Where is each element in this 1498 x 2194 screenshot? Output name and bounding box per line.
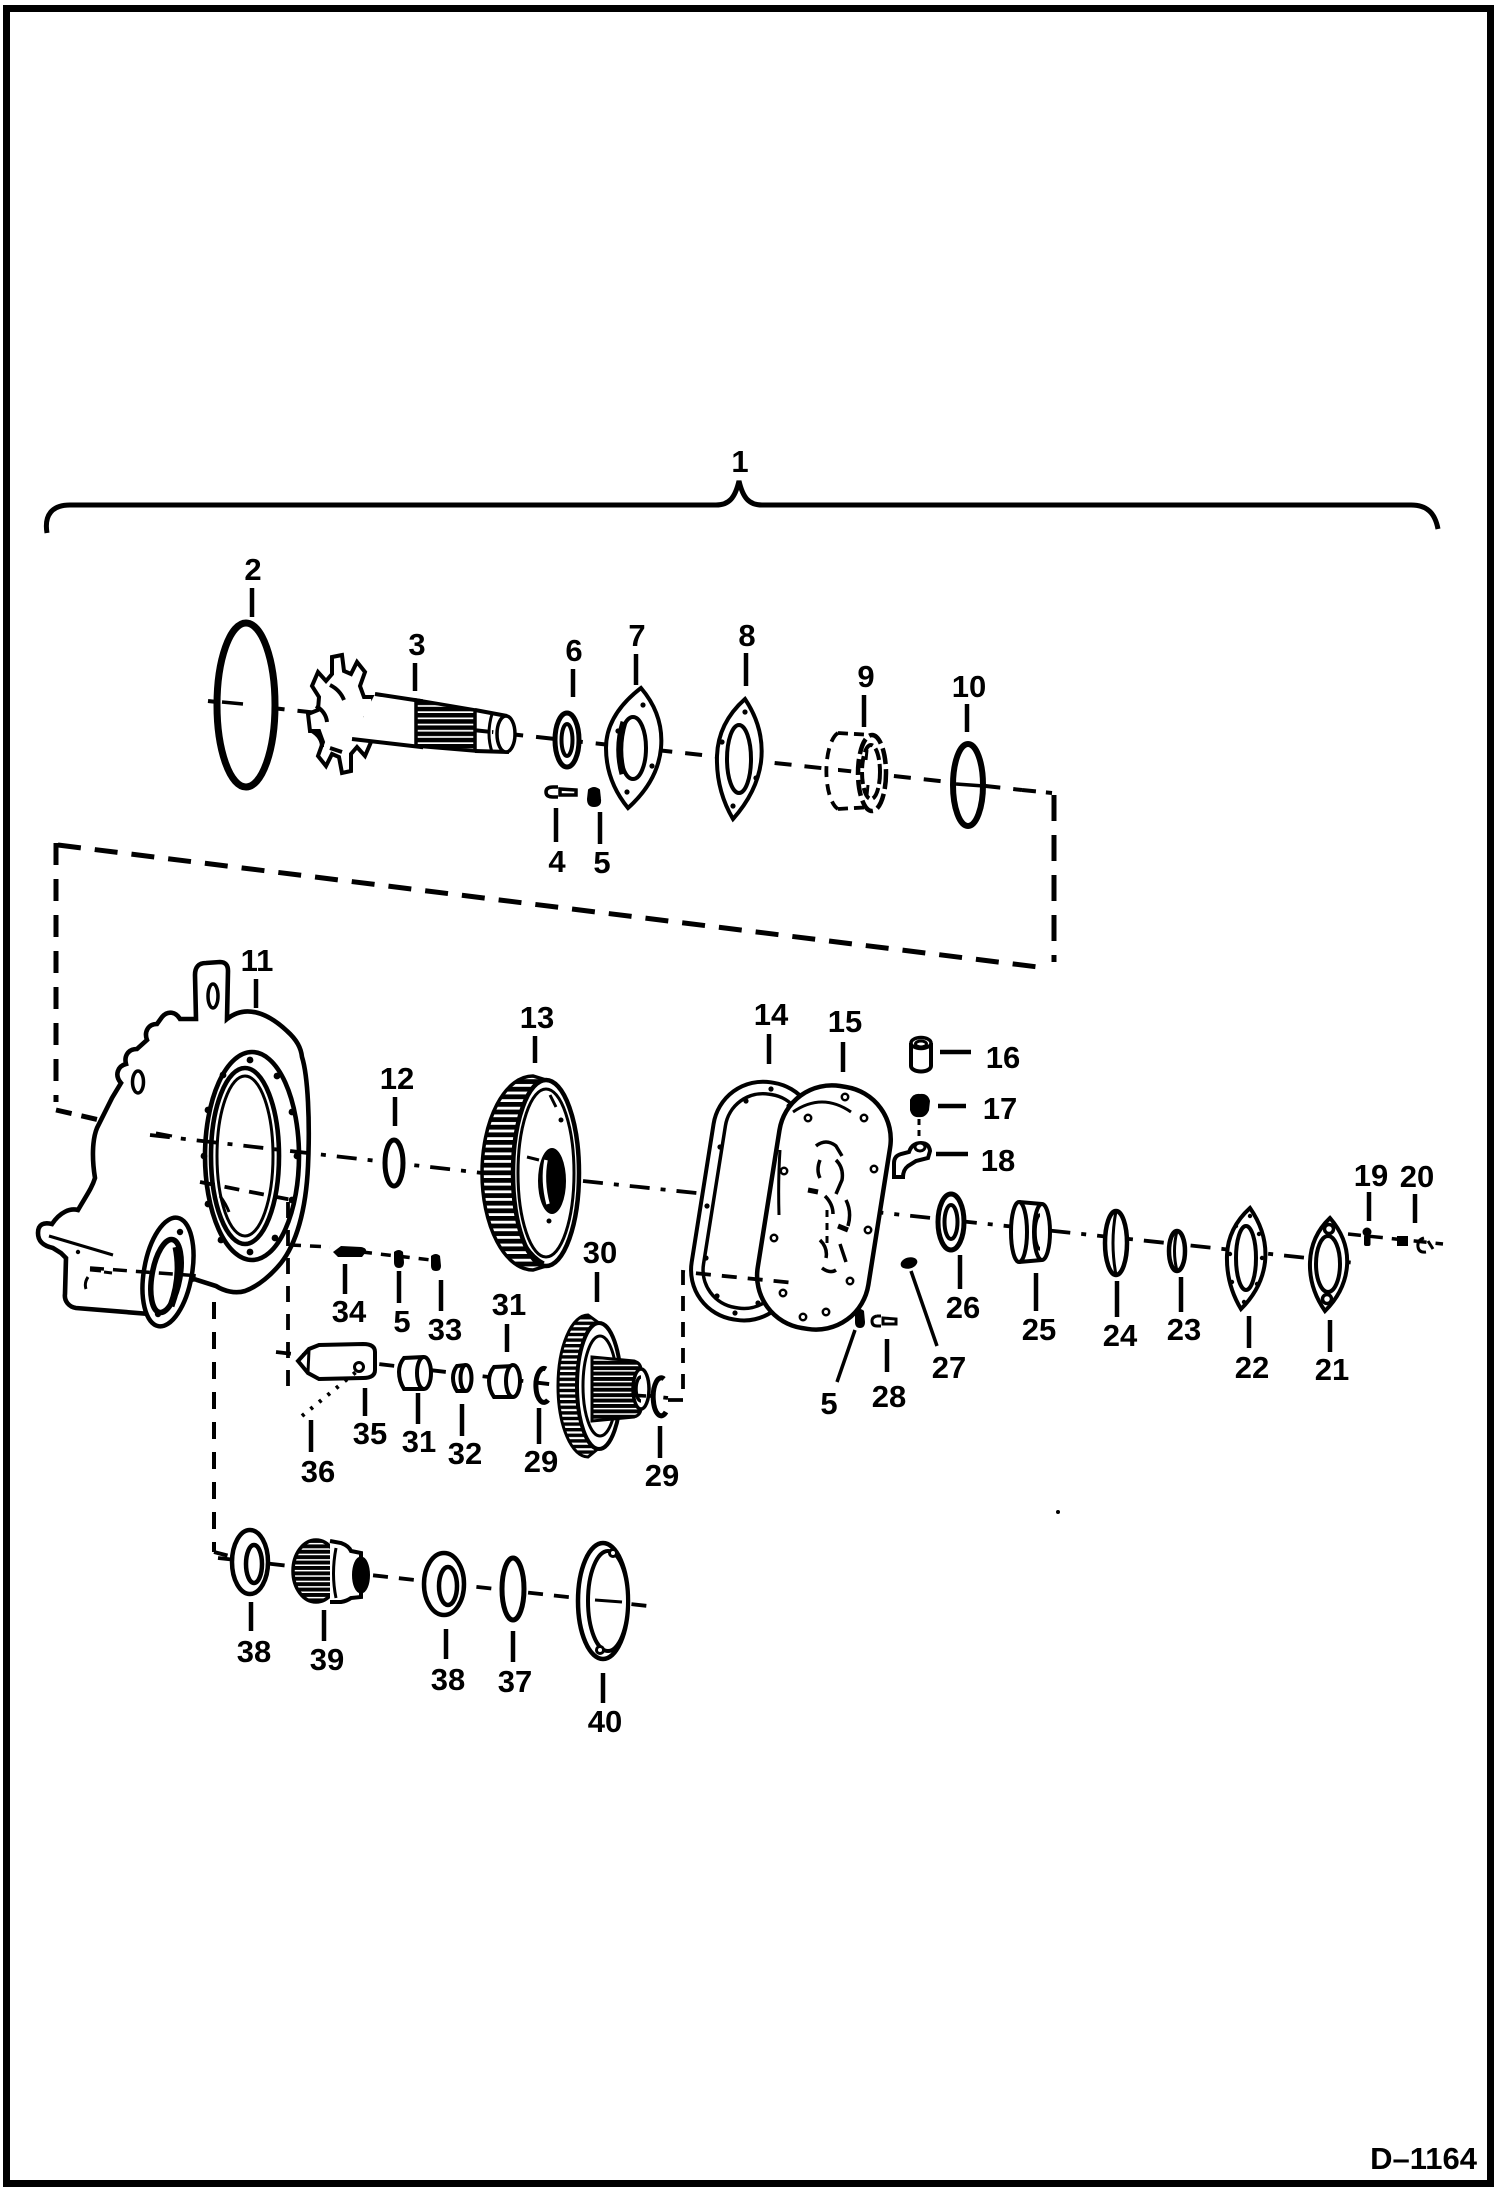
svg-text:24: 24: [1103, 1318, 1138, 1353]
svg-text:29: 29: [524, 1444, 558, 1479]
svg-text:5: 5: [393, 1304, 410, 1339]
svg-text:1: 1: [731, 444, 748, 479]
svg-text:28: 28: [872, 1379, 906, 1414]
svg-text:5: 5: [593, 845, 610, 880]
svg-text:39: 39: [310, 1642, 344, 1677]
svg-text:40: 40: [588, 1704, 622, 1739]
svg-text:33: 33: [428, 1312, 462, 1347]
svg-text:25: 25: [1022, 1312, 1056, 1347]
svg-text:17: 17: [983, 1091, 1017, 1126]
svg-text:5: 5: [820, 1386, 837, 1421]
svg-text:27: 27: [932, 1350, 966, 1385]
svg-text:37: 37: [498, 1664, 532, 1699]
svg-text:36: 36: [301, 1454, 335, 1489]
svg-text:34: 34: [332, 1294, 367, 1329]
svg-text:21: 21: [1315, 1352, 1349, 1387]
svg-text:14: 14: [754, 997, 789, 1032]
svg-text:9: 9: [857, 659, 874, 694]
svg-text:16: 16: [986, 1040, 1020, 1075]
svg-text:D–1164: D–1164: [1370, 2141, 1478, 2176]
svg-text:35: 35: [353, 1416, 387, 1451]
svg-text:2: 2: [244, 552, 261, 587]
svg-text:15: 15: [828, 1004, 862, 1039]
svg-text:3: 3: [408, 627, 425, 662]
svg-text:38: 38: [431, 1662, 465, 1697]
svg-text:19: 19: [1354, 1158, 1388, 1193]
svg-text:18: 18: [981, 1143, 1015, 1178]
svg-text:31: 31: [492, 1287, 526, 1322]
svg-text:6: 6: [565, 633, 582, 668]
svg-text:11: 11: [241, 943, 274, 978]
svg-text:23: 23: [1167, 1312, 1201, 1347]
svg-text:29: 29: [645, 1458, 679, 1493]
svg-text:31: 31: [402, 1424, 436, 1459]
svg-text:20: 20: [1400, 1159, 1434, 1194]
svg-text:38: 38: [237, 1634, 271, 1669]
svg-text:7: 7: [628, 618, 645, 653]
svg-text:30: 30: [583, 1235, 617, 1270]
svg-text:12: 12: [380, 1061, 414, 1096]
svg-text:8: 8: [738, 618, 755, 653]
svg-text:32: 32: [448, 1436, 482, 1471]
svg-text:26: 26: [946, 1290, 980, 1325]
svg-text:13: 13: [520, 1000, 554, 1035]
svg-text:10: 10: [952, 669, 986, 704]
svg-text:4: 4: [548, 844, 566, 879]
svg-text:22: 22: [1235, 1350, 1269, 1385]
